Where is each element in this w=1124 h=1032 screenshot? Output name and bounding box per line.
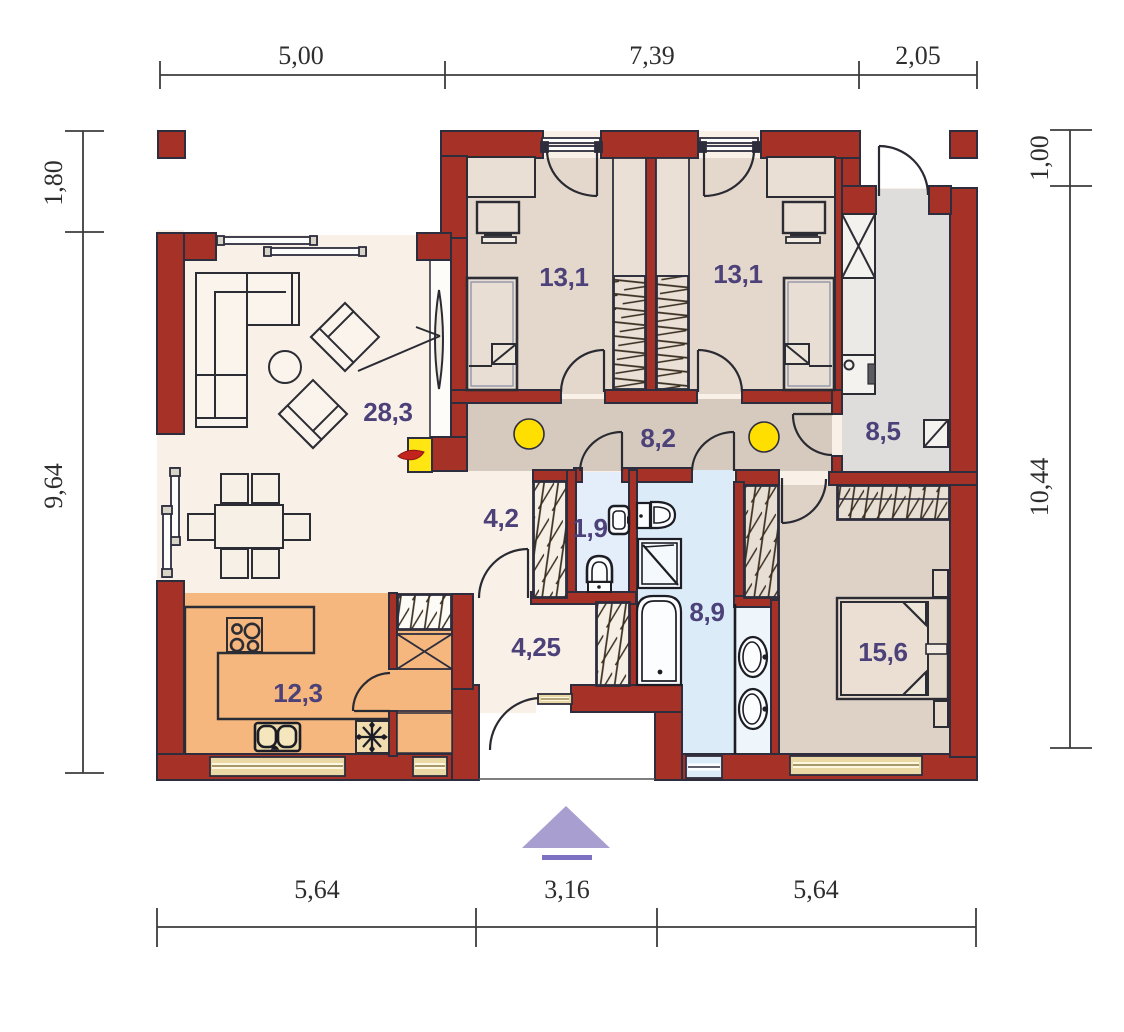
svg-text:8,2: 8,2 [640, 423, 675, 453]
svg-text:3,16: 3,16 [544, 875, 590, 904]
svg-text:4,2: 4,2 [483, 503, 518, 533]
svg-text:7,39: 7,39 [629, 41, 675, 70]
svg-text:5,64: 5,64 [793, 875, 839, 904]
svg-text:9,64: 9,64 [39, 463, 68, 509]
svg-text:8,5: 8,5 [865, 416, 900, 446]
svg-text:1,80: 1,80 [39, 160, 68, 206]
svg-text:8,9: 8,9 [689, 597, 724, 627]
svg-text:5,64: 5,64 [294, 875, 340, 904]
svg-text:12,3: 12,3 [273, 678, 322, 708]
svg-text:13,1: 13,1 [539, 262, 588, 292]
svg-text:28,3: 28,3 [363, 397, 412, 427]
svg-text:13,1: 13,1 [713, 259, 762, 289]
svg-text:4,25: 4,25 [511, 632, 560, 662]
svg-text:1,00: 1,00 [1025, 135, 1054, 181]
svg-text:2,05: 2,05 [895, 41, 941, 70]
svg-text:10,44: 10,44 [1025, 458, 1054, 517]
svg-text:5,00: 5,00 [278, 41, 324, 70]
svg-text:1,9: 1,9 [572, 513, 607, 543]
svg-text:15,6: 15,6 [858, 637, 907, 667]
